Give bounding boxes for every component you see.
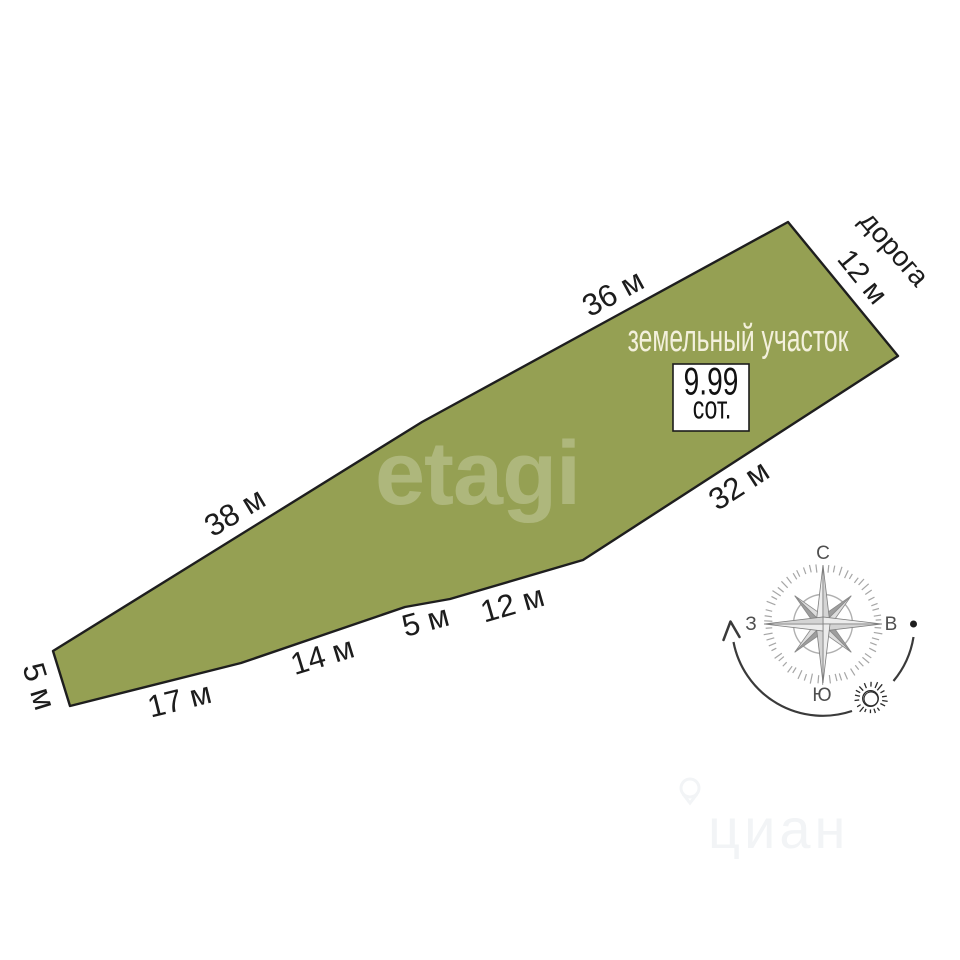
svg-text:З: З — [745, 614, 756, 635]
svg-text:циан: циан — [708, 797, 849, 860]
svg-text:В: В — [885, 614, 898, 635]
svg-text:С: С — [816, 543, 830, 564]
svg-text:сот.: сот. — [693, 390, 731, 426]
svg-text:Ю: Ю — [812, 685, 831, 706]
svg-text:земельный участок: земельный участок — [628, 317, 850, 360]
svg-text:5 м: 5 м — [16, 659, 63, 714]
svg-text:etagi: etagi — [375, 424, 580, 524]
